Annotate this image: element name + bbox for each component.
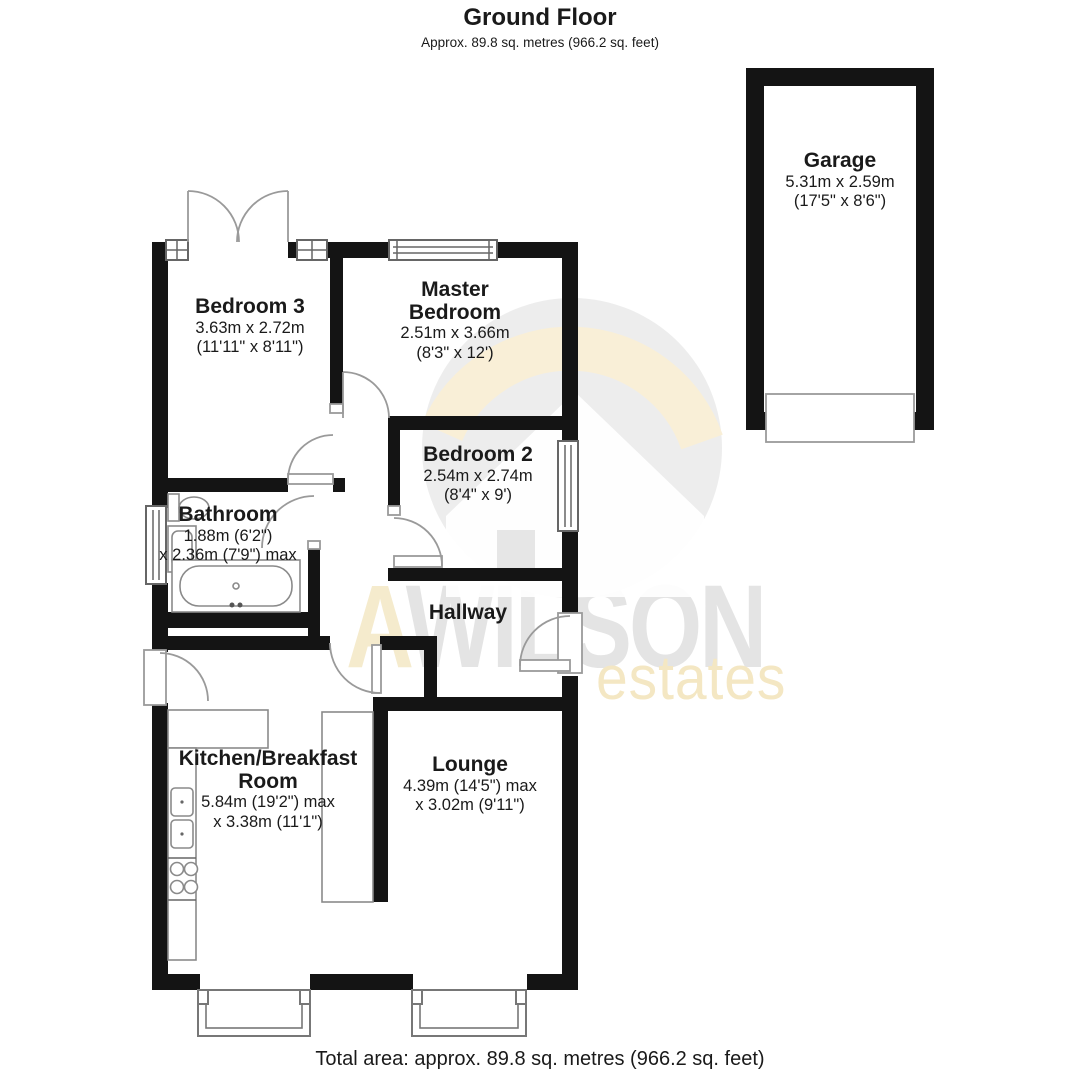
bedroom2-name: Bedroom 2	[423, 444, 533, 467]
total-area-text: Total area: approx. 89.8 sq. metres (966…	[315, 1048, 764, 1071]
bathtub	[172, 560, 300, 612]
page-title: Ground Floor	[421, 4, 659, 32]
kitchen-counter-top	[168, 710, 268, 748]
room-label-lounge: Lounge 4.39m (14'5") max x 3.02m (9'11")	[403, 754, 537, 816]
garage-walls	[746, 68, 934, 430]
bedroom2-dims-imperial: (8'4" x 9')	[423, 486, 533, 506]
garage-door	[766, 394, 914, 442]
room-label-bedroom2: Bedroom 2 2.54m x 2.74m (8'4" x 9')	[423, 444, 533, 506]
room-label-garage: Garage 5.31m x 2.59m (17'5" x 8'6")	[785, 150, 894, 212]
kitchen-name-line2: Room	[179, 771, 358, 794]
bedroom3-window-left	[166, 240, 188, 260]
back-door	[144, 650, 208, 705]
garage-name: Garage	[785, 150, 894, 173]
master-bedroom-window	[389, 240, 497, 260]
bathroom-dims-line1: 1.88m (6'2")	[159, 527, 296, 547]
bathroom-dims-line2: x 2.36m (7'9") max	[159, 546, 296, 566]
bedroom3-dims-imperial: (11'11" x 8'11")	[195, 338, 305, 358]
bedroom2-dims-metric: 2.54m x 2.74m	[423, 467, 533, 487]
page-subtitle: Approx. 89.8 sq. metres (966.2 sq. feet)	[421, 35, 659, 50]
garage-dims-metric: 5.31m x 2.59m	[785, 173, 894, 193]
kitchen-door	[330, 643, 381, 693]
title-block: Ground Floor Approx. 89.8 sq. metres (96…	[421, 4, 659, 50]
kitchen-dims-line2: x 3.38m (11'1")	[179, 813, 358, 833]
garage-dims-imperial: (17'5" x 8'6")	[785, 192, 894, 212]
bay-windows	[198, 990, 526, 1036]
bedroom3-french-doors	[188, 191, 288, 242]
room-label-bedroom3: Bedroom 3 3.63m x 2.72m (11'11" x 8'11")	[195, 296, 305, 358]
lounge-name: Lounge	[403, 754, 537, 777]
bathroom-name: Bathroom	[159, 504, 296, 527]
room-label-bathroom: Bathroom 1.88m (6'2") x 2.36m (7'9") max	[159, 504, 296, 566]
kitchen-bay-window	[198, 990, 310, 1036]
bedroom2-door	[394, 518, 442, 567]
kitchen-dims-line1: 5.84m (19'2") max	[179, 793, 358, 813]
front-door	[520, 613, 582, 673]
master-dims-metric: 2.51m x 3.66m	[400, 324, 509, 344]
room-label-master-bedroom: Master Bedroom 2.51m x 3.66m (8'3" x 12'…	[400, 279, 509, 364]
hallway-name: Hallway	[429, 602, 507, 625]
room-label-hallway: Hallway	[429, 602, 507, 625]
master-bedroom-door	[343, 372, 389, 418]
master-dims-imperial: (8'3" x 12')	[400, 344, 509, 364]
kitchen-name-line1: Kitchen/Breakfast	[179, 748, 358, 771]
bedroom3-door	[288, 435, 333, 484]
room-label-kitchen: Kitchen/Breakfast Room 5.84m (19'2") max…	[179, 748, 358, 833]
lounge-dims-line2: x 3.02m (9'11")	[403, 796, 537, 816]
master-name-line1: Master	[400, 279, 509, 302]
bedroom3-window-right	[297, 240, 327, 260]
bedroom3-name: Bedroom 3	[195, 296, 305, 319]
bedroom3-dims-metric: 3.63m x 2.72m	[195, 319, 305, 339]
bedroom2-window	[558, 441, 578, 531]
floorplan-page: AWILSON estates	[0, 0, 1080, 1080]
lounge-dims-line1: 4.39m (14'5") max	[403, 777, 537, 797]
master-name-line2: Bedroom	[400, 302, 509, 325]
lounge-bay-window	[412, 990, 526, 1036]
